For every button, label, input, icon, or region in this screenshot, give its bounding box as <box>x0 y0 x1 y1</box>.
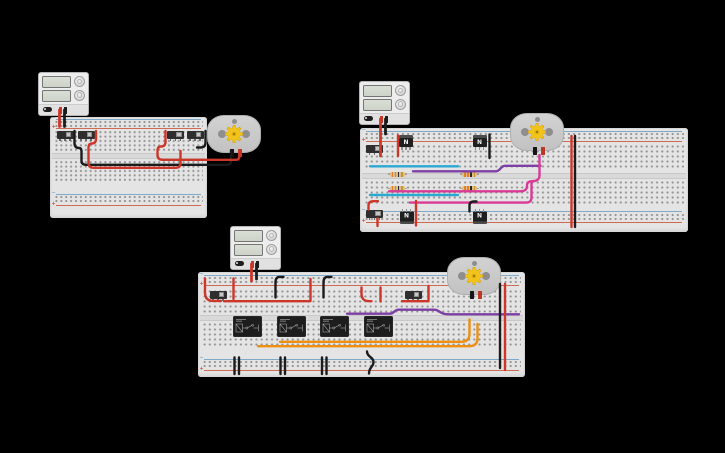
resistor-band <box>401 172 403 177</box>
psu-positive-terminal[interactable] <box>380 116 383 124</box>
breadboard-center-channel <box>52 153 205 160</box>
rail-plus-mark: + <box>362 219 366 224</box>
rail-plus-mark: + <box>200 282 204 287</box>
psu-power-button[interactable] <box>364 116 373 121</box>
slide-switch[interactable] <box>187 131 204 139</box>
switch-leg <box>59 139 61 141</box>
relay[interactable] <box>320 316 349 337</box>
switch-leg <box>175 139 177 141</box>
resistor-band <box>474 186 476 191</box>
switch-leg <box>212 299 214 301</box>
slide-switch-knob[interactable] <box>87 132 93 137</box>
switch-leg <box>189 139 191 141</box>
transistor-leg <box>401 147 403 150</box>
resistor-band <box>398 172 400 177</box>
dc-motor[interactable] <box>510 113 564 151</box>
power-supply[interactable] <box>359 81 410 125</box>
breadboard-holes[interactable] <box>364 180 684 205</box>
switch-leg <box>369 153 371 155</box>
transistor-leg <box>405 147 407 150</box>
switch-leg <box>374 218 376 220</box>
switch-leg <box>64 139 66 141</box>
rail-plus-mark: + <box>200 367 204 372</box>
breadboard-center-channel <box>362 173 686 179</box>
motor-positive-terminal[interactable] <box>478 291 482 299</box>
transistor-label: N <box>473 138 487 148</box>
relay-schematic-icon <box>233 316 262 337</box>
slide-switch[interactable] <box>405 291 422 299</box>
resistor-body <box>390 172 405 177</box>
switch-leg <box>69 139 71 141</box>
rail-plus-mark: + <box>52 202 56 207</box>
rail-positive-line: + <box>56 205 201 206</box>
rail-positive-line: + <box>204 370 519 371</box>
psu-current-knob[interactable] <box>266 244 277 255</box>
motor-negative-terminal[interactable] <box>470 291 474 299</box>
switch-leg <box>407 299 409 301</box>
transistor-label: N <box>399 138 413 148</box>
relay[interactable] <box>233 316 262 337</box>
resistor[interactable] <box>460 172 479 177</box>
transistor-leg <box>409 147 411 150</box>
nmos-transistor[interactable]: N <box>400 209 414 224</box>
breadboard-holes[interactable] <box>54 120 203 128</box>
power-supply[interactable] <box>230 226 281 270</box>
relay-schematic-icon <box>364 316 393 337</box>
resistor-band <box>467 186 469 191</box>
psu-power-button[interactable] <box>235 261 244 266</box>
psu-voltage-display <box>363 85 392 97</box>
psu-positive-terminal[interactable] <box>59 107 62 115</box>
resistor[interactable] <box>460 186 479 191</box>
slide-switch[interactable] <box>210 291 227 299</box>
slide-switch[interactable] <box>366 145 383 153</box>
nmos-transistor[interactable]: N <box>399 135 413 150</box>
transistor-leg <box>475 147 477 150</box>
resistor-band <box>395 172 397 177</box>
resistor-band <box>464 186 466 191</box>
slide-switch-knob[interactable] <box>196 132 202 137</box>
resistor-band <box>401 186 403 191</box>
motor-gear-icon <box>527 122 547 142</box>
switch-leg <box>170 139 172 141</box>
resistor-band <box>392 172 394 177</box>
switch-leg <box>199 139 201 141</box>
resistor[interactable] <box>388 172 407 177</box>
relay[interactable] <box>277 316 306 337</box>
transistor-leg <box>479 147 481 150</box>
switch-leg <box>180 139 182 141</box>
motor-negative-terminal[interactable] <box>533 147 537 155</box>
slide-switch-knob[interactable] <box>176 132 182 137</box>
slide-switch[interactable] <box>57 131 74 139</box>
resistor-band <box>398 186 400 191</box>
transistor-tab <box>473 221 487 224</box>
motor-gear-icon <box>224 124 244 144</box>
slide-switch-knob[interactable] <box>414 292 420 297</box>
resistor-body <box>462 186 477 191</box>
resistor-band <box>392 186 394 191</box>
slide-switch[interactable] <box>167 131 184 139</box>
resistor-band <box>464 172 466 177</box>
nmos-transistor[interactable]: N <box>473 209 487 224</box>
psu-power-button[interactable] <box>43 107 52 112</box>
slide-switch-knob[interactable] <box>219 292 225 297</box>
psu-negative-terminal[interactable] <box>64 107 67 115</box>
rail-plus-mark: + <box>362 138 366 143</box>
transistor-leg <box>479 209 481 212</box>
psu-current-display <box>42 90 71 102</box>
psu-current-display <box>234 244 263 256</box>
psu-voltage-knob[interactable] <box>395 85 406 96</box>
psu-current-knob[interactable] <box>395 99 406 110</box>
switch-leg <box>217 299 219 301</box>
psu-current-display <box>363 99 392 111</box>
slide-switch-knob[interactable] <box>66 132 72 137</box>
relay-schematic-icon <box>277 316 306 337</box>
psu-voltage-knob[interactable] <box>74 76 85 87</box>
switch-leg <box>417 299 419 301</box>
transistor-leg <box>483 147 485 150</box>
circuit-canvas[interactable]: −+−+ <box>0 0 725 453</box>
transistor-leg <box>406 209 408 212</box>
psu-negative-terminal[interactable] <box>256 261 259 269</box>
psu-voltage-knob[interactable] <box>266 230 277 241</box>
switch-leg <box>194 139 196 141</box>
resistor-band <box>395 186 397 191</box>
slide-switch-knob[interactable] <box>375 146 381 151</box>
slide-switch[interactable] <box>78 131 95 139</box>
transistor-label: N <box>473 212 487 222</box>
motor-negative-terminal[interactable] <box>230 149 234 157</box>
psu-voltage-display <box>42 76 71 88</box>
resistor-band <box>474 172 476 177</box>
dc-motor[interactable] <box>207 115 261 153</box>
switch-leg <box>412 299 414 301</box>
resistor-body <box>462 172 477 177</box>
transistor-leg <box>410 209 412 212</box>
switch-leg <box>80 139 82 141</box>
switch-leg <box>85 139 87 141</box>
switch-leg <box>369 218 371 220</box>
breadboard-holes[interactable] <box>54 160 203 182</box>
switch-leg <box>90 139 92 141</box>
motor-positive-terminal[interactable] <box>238 149 242 157</box>
relay[interactable] <box>364 316 393 337</box>
transistor-tab <box>400 221 414 224</box>
psu-voltage-display <box>234 230 263 242</box>
psu-positive-terminal[interactable] <box>251 261 254 269</box>
nmos-transistor[interactable]: N <box>473 135 487 150</box>
switch-leg <box>379 218 381 220</box>
slide-switch[interactable] <box>366 210 383 218</box>
power-supply[interactable] <box>38 72 89 116</box>
resistor-band <box>470 172 472 177</box>
psu-negative-terminal[interactable] <box>385 116 388 124</box>
breadboard-holes[interactable] <box>54 195 203 203</box>
relay-schematic-icon <box>320 316 349 337</box>
switch-leg <box>379 153 381 155</box>
breadboard-holes[interactable] <box>202 360 521 368</box>
resistor-band <box>467 172 469 177</box>
motor-gear-icon <box>464 266 484 286</box>
transistor-leg <box>402 209 404 212</box>
transistor-label: N <box>400 212 414 222</box>
psu-current-knob[interactable] <box>74 90 85 101</box>
resistor-body <box>390 186 405 191</box>
switch-leg <box>222 299 224 301</box>
motor-positive-terminal[interactable] <box>541 147 545 155</box>
transistor-leg <box>475 209 477 212</box>
resistor[interactable] <box>388 186 407 191</box>
resistor-band <box>470 186 472 191</box>
switch-leg <box>374 153 376 155</box>
slide-switch-knob[interactable] <box>375 211 381 216</box>
dc-motor[interactable] <box>447 257 501 295</box>
transistor-leg <box>483 209 485 212</box>
